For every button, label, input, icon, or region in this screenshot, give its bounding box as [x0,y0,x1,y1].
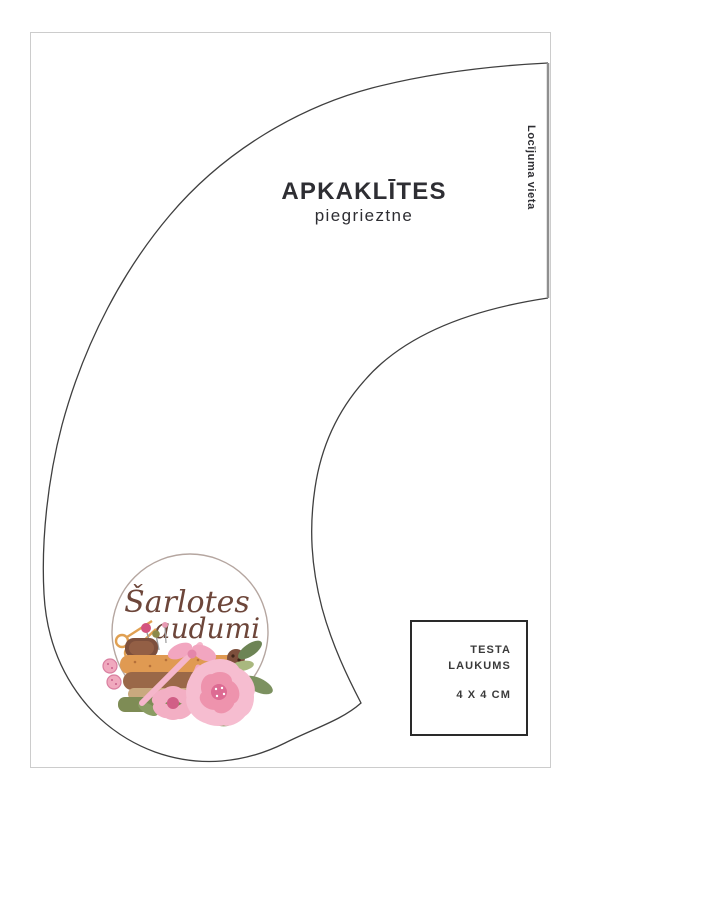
pattern-sheet: APKAKLĪTES piegrieztne Locījuma vieta TE… [0,0,712,918]
pattern-subtitle: piegrieztne [248,206,480,226]
test-square-size: 4 X 4 CM [448,688,511,704]
test-square: TESTA LAUKUMS 4 X 4 CM [410,620,528,736]
logo-name-line2: audumi [154,612,260,645]
test-square-label-line1: TESTA [448,643,511,659]
test-square-text: TESTA LAUKUMS 4 X 4 CM [448,643,511,704]
test-square-label-line2: LAUKUMS [448,659,511,675]
brand-logo: Šarlotes audumi [100,545,285,740]
collar-pattern-outline [0,0,712,918]
pattern-title: APKAKLĪTES [248,178,480,206]
title-block: APKAKLĪTES piegrieztne [248,178,480,226]
fold-place-label: Locījuma vieta [525,125,537,210]
